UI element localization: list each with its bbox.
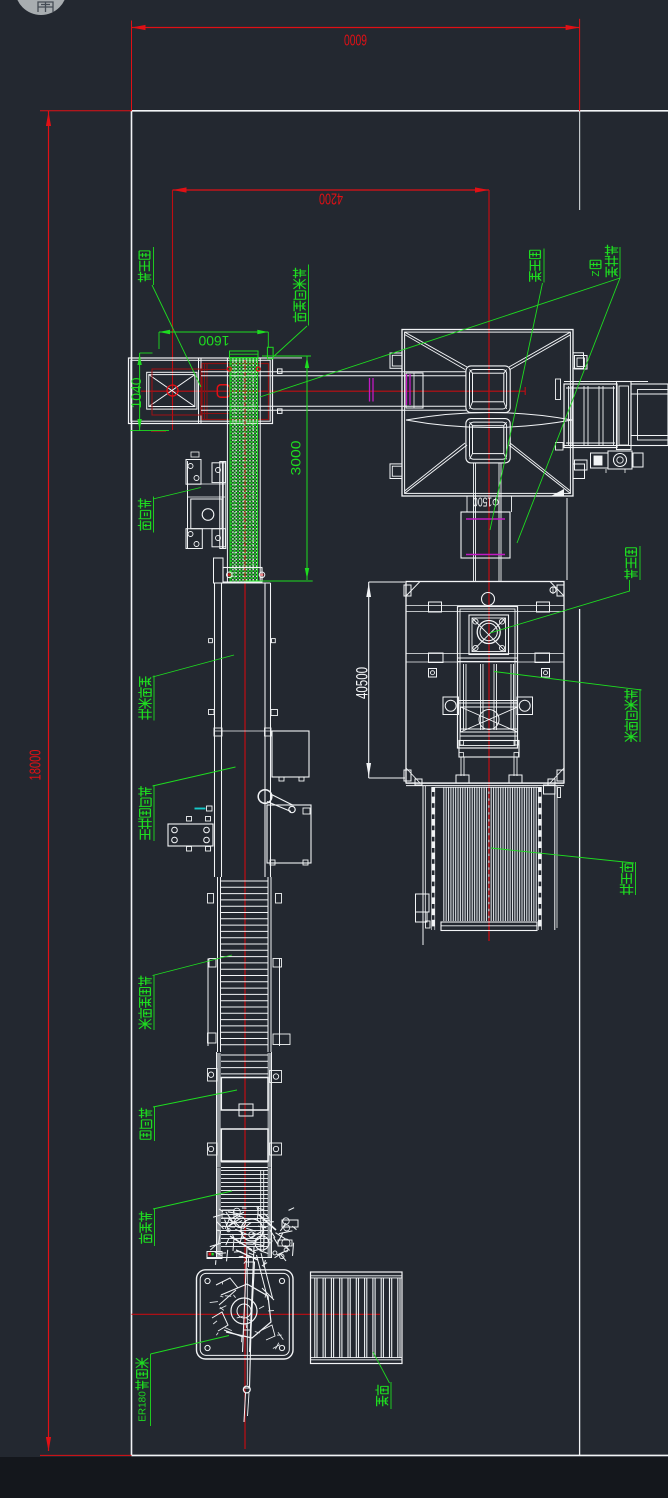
svg-text:18000: 18000 (28, 749, 45, 780)
svg-text:40500: 40500 (354, 667, 372, 699)
svg-text:Z: Z (591, 270, 602, 276)
svg-text:4200: 4200 (319, 190, 343, 207)
svg-text:6000: 6000 (344, 31, 367, 48)
svg-text:1040: 1040 (128, 377, 144, 408)
svg-text:ER180: ER180 (138, 1391, 149, 1422)
svg-text:3000: 3000 (288, 440, 304, 475)
svg-text:1600: 1600 (198, 333, 229, 349)
